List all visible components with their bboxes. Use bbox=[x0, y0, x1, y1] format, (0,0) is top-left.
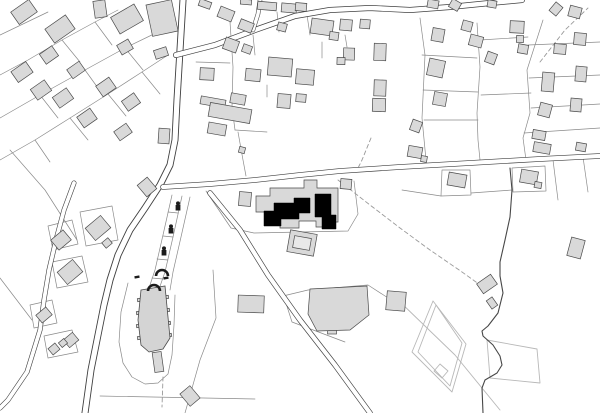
cadastral-map bbox=[0, 0, 600, 413]
wayside-station-icon bbox=[176, 201, 181, 210]
map-canvas[interactable] bbox=[0, 0, 600, 413]
wayside-station-icon bbox=[162, 246, 167, 255]
wayside-station-icon bbox=[169, 224, 174, 233]
church-building bbox=[138, 286, 170, 352]
arch-icon bbox=[156, 270, 168, 276]
dashed-lines bbox=[162, 8, 588, 407]
gate-mark-icon bbox=[163, 276, 168, 279]
gate-mark-icon bbox=[134, 275, 139, 278]
church-building bbox=[138, 286, 170, 352]
light-lines bbox=[398, 300, 540, 410]
courtyard-building-inner bbox=[293, 236, 312, 251]
barn-building bbox=[308, 286, 369, 331]
